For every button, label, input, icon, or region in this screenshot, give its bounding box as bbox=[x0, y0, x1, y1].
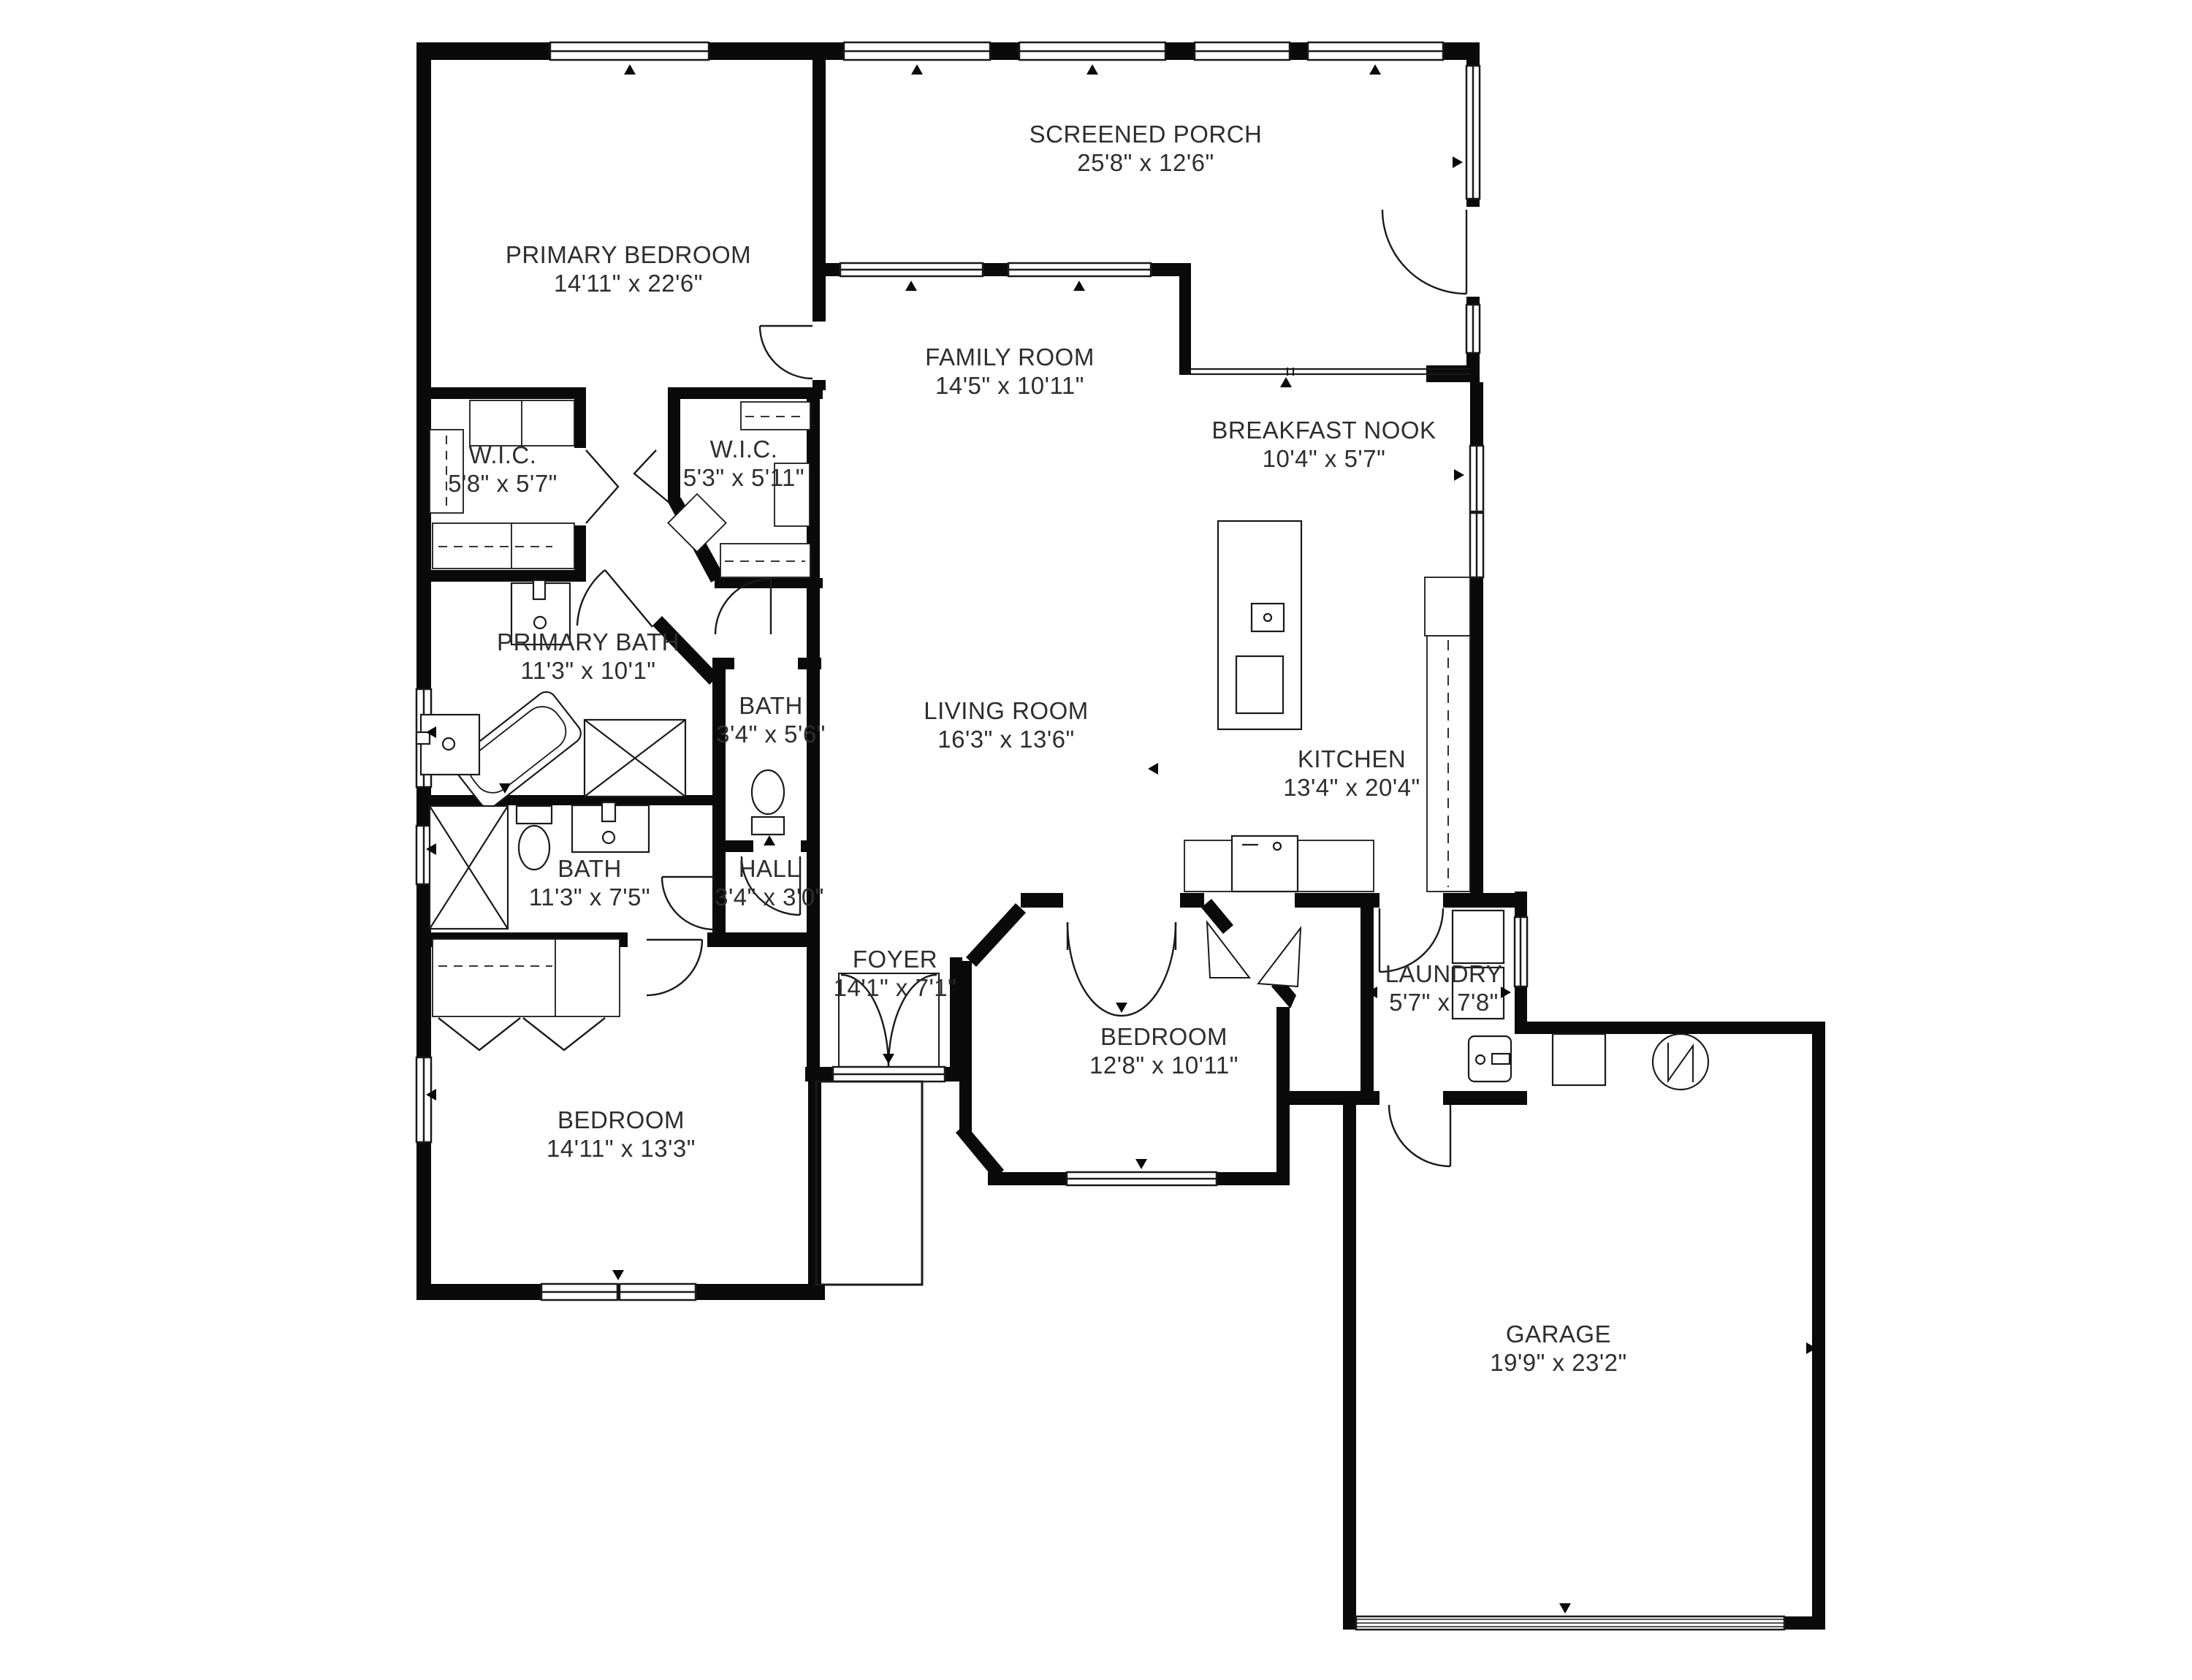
room-label-garage: GARAGE19'9" x 23'2" bbox=[1490, 1320, 1626, 1377]
room-label-bath-small: BATH3'4" x 5'6" bbox=[716, 691, 826, 748]
room-dimensions: 10'4" x 5'7" bbox=[1211, 444, 1436, 473]
room-name: W.I.C. bbox=[448, 441, 557, 469]
room-label-breakfast-nook: BREAKFAST NOOK10'4" x 5'7" bbox=[1211, 416, 1436, 473]
closet-shelf bbox=[433, 939, 620, 1016]
room-dimensions: 25'8" x 12'6" bbox=[1030, 148, 1263, 177]
vanity-primary-west bbox=[416, 715, 479, 775]
room-name: W.I.C. bbox=[683, 435, 804, 463]
room-dimensions: 12'8" x 10'11" bbox=[1089, 1051, 1238, 1079]
room-name: BATH bbox=[716, 691, 826, 720]
shower-symbol-primary bbox=[585, 720, 685, 797]
porch-door bbox=[1382, 210, 1466, 294]
room-dimensions: 14'1" x 7'1" bbox=[834, 973, 957, 1002]
room-dimensions: 11'3" x 10'1" bbox=[497, 656, 680, 685]
room-label-screened-porch: SCREENED PORCH25'8" x 12'6" bbox=[1030, 120, 1263, 177]
room-label-primary-bath: PRIMARY BATH11'3" x 10'1" bbox=[497, 628, 680, 685]
room-dimensions: 3'4" x 5'6" bbox=[716, 720, 826, 748]
room-dimensions: 5'3" x 5'11" bbox=[683, 463, 804, 492]
bath-door bbox=[662, 877, 715, 930]
room-name: BEDROOM bbox=[1089, 1022, 1238, 1051]
room-name: FOYER bbox=[834, 945, 957, 973]
room-dimensions: 14'5" x 10'11" bbox=[925, 371, 1095, 400]
floor-plan-drawing bbox=[0, 0, 2192, 1680]
room-name: GARAGE bbox=[1490, 1320, 1626, 1348]
bedroom-french-doors bbox=[1068, 922, 1176, 1016]
room-name: FAMILY ROOM bbox=[925, 343, 1095, 371]
garage-door bbox=[1356, 1616, 1784, 1630]
room-name: KITCHEN bbox=[1283, 745, 1420, 773]
room-dimensions: 16'3" x 13'6" bbox=[924, 725, 1089, 753]
room-dimensions: 13'4" x 20'4" bbox=[1283, 773, 1420, 802]
room-label-bedroom-left: BEDROOM14'11" x 13'3" bbox=[547, 1106, 696, 1163]
room-label-living-room: LIVING ROOM16'3" x 13'6" bbox=[924, 696, 1089, 753]
room-name: BREAKFAST NOOK bbox=[1211, 416, 1436, 444]
primary-bath-door bbox=[577, 570, 652, 627]
room-name: SCREENED PORCH bbox=[1030, 120, 1263, 148]
kitchen-counter-south bbox=[1184, 836, 1374, 892]
room-label-hall: HALL3'4" x 3'0" bbox=[715, 854, 824, 911]
room-label-kitchen: KITCHEN13'4" x 20'4" bbox=[1283, 745, 1420, 802]
floor-plan-page: SCREENED PORCH25'8" x 12'6"PRIMARY BEDRO… bbox=[0, 0, 2192, 1680]
room-name: LAUNDRY bbox=[1385, 959, 1503, 988]
room-label-wic-right: W.I.C.5'3" x 5'11" bbox=[683, 435, 804, 492]
laundry-sink-symbol bbox=[1469, 1036, 1511, 1082]
room-name: BEDROOM bbox=[547, 1106, 696, 1134]
front-stoop bbox=[816, 1082, 922, 1285]
room-name: PRIMARY BEDROOM bbox=[506, 240, 751, 269]
family-room-door bbox=[760, 326, 813, 379]
vanity-bath bbox=[572, 802, 649, 852]
room-dimensions: 14'11" x 13'3" bbox=[547, 1134, 696, 1163]
wic-left-door bbox=[586, 450, 618, 523]
room-label-foyer: FOYER14'1" x 7'1" bbox=[834, 945, 957, 1002]
closet-angled-doors bbox=[1207, 922, 1301, 987]
room-name: HALL bbox=[715, 854, 824, 883]
closet-bifold-doors bbox=[438, 1018, 605, 1050]
shower-symbol-bath bbox=[430, 806, 508, 929]
room-label-primary-bedroom: PRIMARY BEDROOM14'11" x 22'6" bbox=[506, 240, 751, 297]
room-dimensions: 11'3" x 7'5" bbox=[529, 883, 650, 911]
garage-entry-door bbox=[1389, 1105, 1450, 1166]
room-name: PRIMARY BATH bbox=[497, 628, 680, 656]
room-dimensions: 5'8" x 5'7" bbox=[448, 469, 557, 498]
room-label-bedroom-middle: BEDROOM12'8" x 10'11" bbox=[1089, 1022, 1238, 1079]
water-heater-symbol bbox=[1653, 1034, 1708, 1090]
room-dimensions: 14'11" x 22'6" bbox=[506, 269, 751, 297]
kitchen-counter-east bbox=[1425, 577, 1470, 892]
kitchen-island-symbol bbox=[1218, 521, 1301, 729]
toilet-symbol-small-bath bbox=[752, 770, 784, 835]
room-label-family-room: FAMILY ROOM14'5" x 10'11" bbox=[925, 343, 1095, 400]
room-name: BATH bbox=[529, 854, 650, 883]
hvac-symbol bbox=[1553, 1034, 1605, 1085]
room-dimensions: 19'9" x 23'2" bbox=[1490, 1348, 1626, 1377]
room-label-laundry: LAUNDRY5'7" x 7'8" bbox=[1385, 959, 1503, 1016]
room-dimensions: 3'4" x 3'0" bbox=[715, 883, 824, 911]
room-name: LIVING ROOM bbox=[924, 696, 1089, 725]
room-label-bath: BATH11'3" x 7'5" bbox=[529, 854, 650, 911]
bedroom-left-door bbox=[647, 940, 702, 995]
room-label-wic-left: W.I.C.5'8" x 5'7" bbox=[448, 441, 557, 498]
room-dimensions: 5'7" x 7'8" bbox=[1385, 988, 1503, 1016]
wic-right-door bbox=[634, 450, 669, 503]
